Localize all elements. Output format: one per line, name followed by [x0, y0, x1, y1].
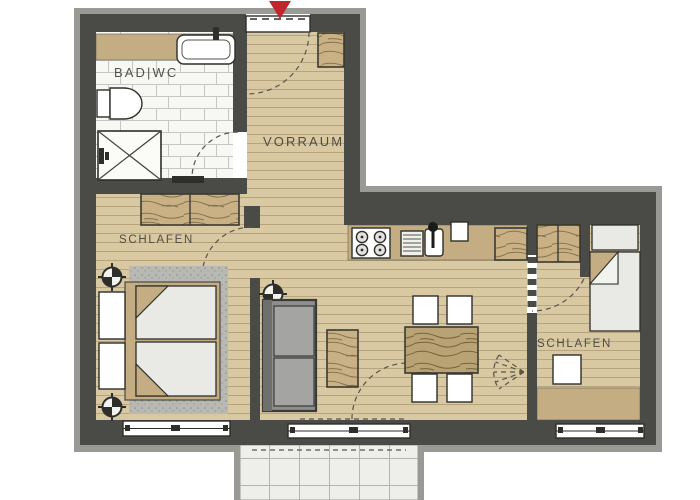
balcony-tile-floor — [240, 445, 418, 500]
chair — [412, 374, 437, 402]
bathroom-door-threshold — [172, 176, 204, 183]
nightstand-2 — [99, 343, 125, 389]
washbasin — [177, 35, 235, 64]
wall-right-wing-top — [352, 192, 656, 225]
dining-table — [405, 327, 478, 373]
wall-bedroom-right-partition-top — [527, 225, 537, 255]
room-label-bedroom-left: SCHLAFEN — [119, 234, 194, 246]
room-label-bedroom-right: SCHLAFEN — [537, 338, 612, 350]
wall-wardrobe-divider — [580, 222, 590, 277]
nightstand-1 — [99, 292, 125, 339]
coffee-table — [327, 330, 358, 387]
floor-plan: BAD|WC VORRAUM SCHLAFEN SCHLAFEN — [0, 0, 700, 500]
chair — [447, 296, 472, 324]
hallway-cabinet — [318, 33, 344, 67]
shower — [98, 131, 161, 180]
faucet-icon — [428, 222, 438, 232]
pillow — [592, 225, 638, 250]
wall-top-left — [80, 14, 246, 32]
toilet — [97, 88, 142, 119]
kitchen-column — [451, 222, 468, 241]
wall-edge — [74, 445, 234, 452]
floor-plan-drawing: BAD|WC VORRAUM SCHLAFEN SCHLAFEN — [0, 0, 700, 500]
kitchen-cabinet — [495, 228, 527, 260]
shower-head-icon — [99, 148, 104, 164]
wall-stub-bedroom-door — [244, 206, 260, 228]
room-label-hallway: VORRAUM — [263, 134, 344, 149]
sofa — [263, 300, 316, 411]
balcony-rail-left — [234, 445, 240, 500]
chair — [413, 296, 438, 324]
balcony — [234, 445, 424, 500]
balcony-rail-right — [418, 445, 424, 500]
window-bedroom-right — [556, 424, 644, 438]
room-label-bathroom: BAD|WC — [114, 65, 178, 80]
chair — [447, 374, 472, 402]
wall-edge — [360, 186, 662, 192]
wall-bedroom-right-partition-bottom — [527, 313, 537, 420]
window-bedroom-left — [123, 421, 230, 436]
wall-edge — [424, 445, 662, 452]
stool — [553, 355, 581, 384]
wall-edge — [360, 8, 366, 192]
bedroom-right-floor-strip — [537, 388, 640, 420]
wall-right — [640, 192, 656, 445]
wall-edge — [74, 8, 80, 452]
stove — [352, 228, 390, 258]
hallway-furniture — [318, 33, 344, 67]
faucet-knob-icon — [213, 27, 220, 34]
wall-edge — [74, 8, 360, 14]
wall-bedroom-left-partition — [250, 278, 260, 420]
wall-left — [80, 14, 96, 445]
wall-edge — [656, 192, 662, 452]
